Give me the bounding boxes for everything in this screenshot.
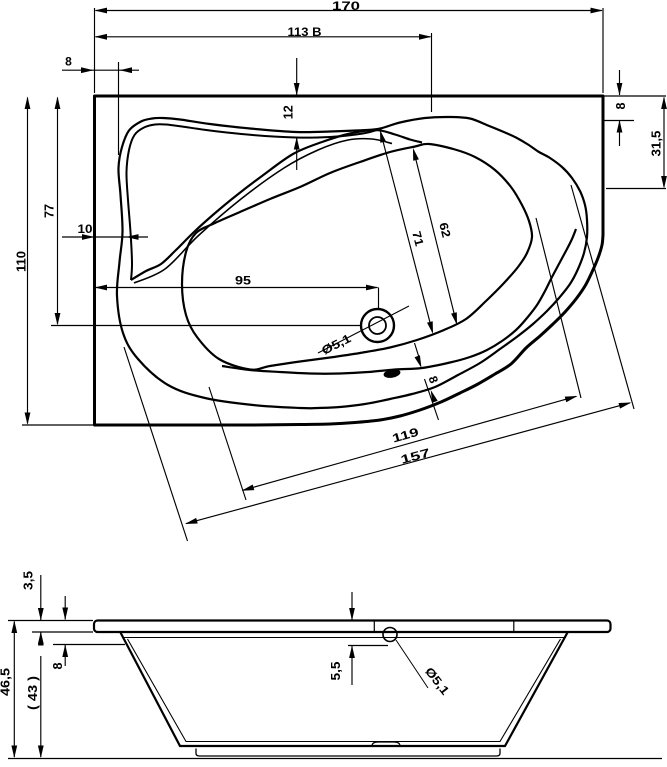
svg-text:8: 8 (65, 55, 72, 69)
svg-text:8: 8 (51, 662, 65, 669)
svg-text:113 B: 113 B (288, 25, 322, 39)
svg-text:8: 8 (614, 102, 628, 109)
svg-text:3,5: 3,5 (21, 571, 35, 590)
svg-text:12: 12 (281, 105, 295, 119)
svg-text:( 43 ): ( 43 ) (26, 676, 40, 710)
svg-text:5,5: 5,5 (329, 661, 343, 680)
svg-text:95: 95 (235, 274, 251, 288)
svg-text:170: 170 (332, 0, 360, 13)
svg-text:110: 110 (15, 251, 29, 272)
svg-text:31,5: 31,5 (650, 130, 664, 156)
svg-text:46,5: 46,5 (0, 668, 12, 696)
svg-text:10: 10 (78, 222, 93, 236)
svg-text:77: 77 (42, 204, 56, 218)
